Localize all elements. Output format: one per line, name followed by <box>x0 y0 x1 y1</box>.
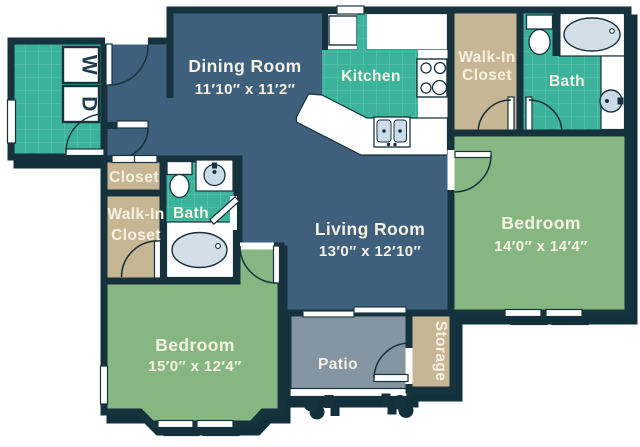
apartment-floorplan: W D <box>0 0 640 447</box>
bedroom-left-window-2 <box>197 421 233 428</box>
bedroom-right-dims: 14′0″ x 14′4″ <box>494 238 588 255</box>
dining-label: Dining Room <box>188 56 301 76</box>
bedroom-left-door <box>274 246 280 283</box>
kitchen-wall-stub <box>322 10 328 50</box>
walkin-left-door <box>155 241 161 278</box>
laundry-door <box>66 149 104 156</box>
living-label: Living Room <box>315 219 425 239</box>
bedroom-right-door <box>455 152 491 158</box>
bedroom-right-label: Bedroom <box>501 213 581 233</box>
patio-slider-2 <box>354 307 406 313</box>
patio-post <box>382 394 391 407</box>
sink-right <box>600 56 625 130</box>
walkin-right-label-2: Closet <box>462 67 512 84</box>
sink-left <box>196 160 233 191</box>
bedroom-left-door-opening <box>240 243 274 250</box>
walkin-left-label-1: Walk-In <box>107 206 164 223</box>
bath-right-label: Bath <box>549 73 585 90</box>
storage-door <box>374 375 408 382</box>
storage-label: Storage <box>432 321 449 382</box>
patio-slider-1 <box>303 311 354 317</box>
patio-post <box>393 395 408 410</box>
dryer-label: D <box>77 96 100 112</box>
bath-left-label: Bath <box>173 205 209 222</box>
dining-wall-stub <box>167 41 174 98</box>
bath-right-door <box>526 97 532 133</box>
dining-dims: 11′10″ x 11′2″ <box>195 81 296 98</box>
bath-right-wall-stub <box>553 10 561 56</box>
stove <box>417 59 447 97</box>
patio-post <box>325 395 334 408</box>
bedroom-left-window-side <box>101 366 108 404</box>
entry-door <box>106 44 112 85</box>
walkin-left-label-2: Closet <box>111 227 161 244</box>
hall-divider-wall <box>101 122 118 129</box>
patio-label: Patio <box>318 356 358 373</box>
toilet-right <box>527 15 553 55</box>
bedroom-right-door-opening <box>448 150 455 190</box>
kitchen-cabinet <box>329 16 357 45</box>
bedroom-left-dims: 15′0″ x 12′4″ <box>148 358 242 375</box>
hall-door <box>117 121 148 128</box>
closet-label: Closet <box>109 169 159 186</box>
patio-post <box>304 397 319 412</box>
walkin-right-door <box>508 97 514 133</box>
living-dims: 13′0″ x 12′10″ <box>319 243 421 260</box>
kitchen-window <box>337 6 364 14</box>
bedroom-right-window-1 <box>505 310 541 317</box>
kitchen-sink <box>374 117 410 147</box>
walkin-right-label-1: Walk-In <box>458 49 515 66</box>
floorplan-canvas: W D <box>0 0 640 447</box>
bathtub-left <box>167 222 234 278</box>
bedroom-right-window-2 <box>546 310 582 317</box>
laundry-room: W D <box>8 41 105 157</box>
kitchen-label: Kitchen <box>341 68 401 85</box>
bedroom-left-window-1 <box>158 421 193 428</box>
washer-label: W <box>77 55 100 75</box>
bathtub-right <box>560 14 625 57</box>
laundry-window <box>8 100 16 143</box>
bedroom-left-label: Bedroom <box>155 335 235 355</box>
